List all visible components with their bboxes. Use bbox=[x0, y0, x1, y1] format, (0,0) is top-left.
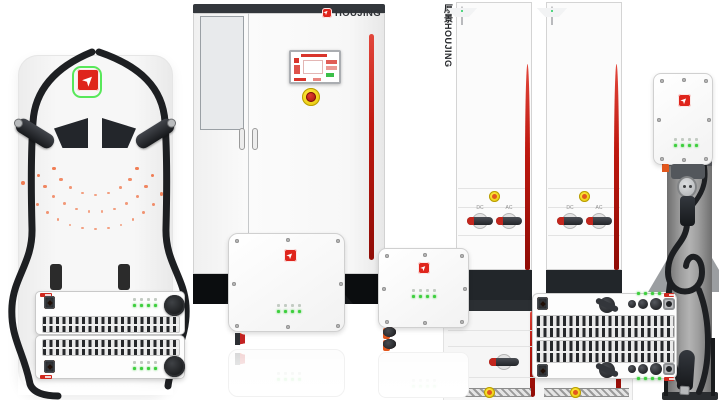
status-led bbox=[291, 304, 294, 307]
emergency-stop-cap bbox=[306, 92, 316, 102]
charging-status-dot bbox=[46, 211, 49, 214]
product-collage-canvas: ➤ bbox=[0, 0, 719, 400]
charging-status-dot bbox=[152, 203, 155, 206]
status-led bbox=[688, 144, 691, 147]
reflection-leds bbox=[412, 379, 440, 391]
screw bbox=[660, 79, 664, 83]
emergency-stop-button[interactable] bbox=[579, 191, 590, 202]
status-led bbox=[291, 372, 294, 375]
connector-rbk bbox=[383, 339, 396, 349]
brand-arrow-icon: ➤ bbox=[679, 95, 689, 105]
emergency-stop-cap bbox=[582, 194, 587, 199]
round-connector bbox=[650, 363, 662, 375]
screw bbox=[657, 118, 661, 122]
connector-bk bbox=[44, 360, 55, 373]
connector-pin bbox=[689, 185, 692, 188]
power-module-unit-bottom bbox=[35, 335, 185, 379]
connector-bar bbox=[235, 353, 240, 365]
charging-status-dot bbox=[107, 192, 110, 195]
breaker-switch[interactable] bbox=[489, 353, 519, 371]
wall-charger-reflection bbox=[378, 352, 469, 398]
panel-seam bbox=[548, 188, 620, 189]
status-led bbox=[133, 298, 136, 301]
charging-status-dot bbox=[36, 203, 39, 206]
charging-status-dot bbox=[52, 195, 55, 198]
charging-status-dot bbox=[132, 218, 135, 221]
switch-label: DC bbox=[476, 205, 483, 211]
module-vent-grille bbox=[536, 340, 675, 363]
status-led bbox=[695, 144, 698, 147]
vent-hatch-strip bbox=[544, 388, 629, 397]
brand-arrow-icon: ➤ bbox=[79, 71, 97, 89]
charging-status-dot bbox=[101, 210, 104, 213]
charging-status-dot bbox=[94, 194, 97, 197]
charging-status-dot bbox=[75, 208, 78, 211]
status-led bbox=[291, 310, 294, 313]
status-led bbox=[412, 385, 415, 388]
status-led-grid bbox=[674, 138, 702, 150]
charging-status-dot bbox=[113, 208, 116, 211]
status-led bbox=[140, 367, 143, 370]
wall-charger-reflection bbox=[228, 349, 345, 397]
status-led bbox=[695, 138, 698, 141]
charging-status-dot bbox=[120, 224, 123, 227]
screw bbox=[460, 320, 464, 324]
screw bbox=[682, 158, 686, 162]
screw bbox=[660, 157, 664, 161]
connector-bar bbox=[235, 353, 240, 365]
connector-bar bbox=[235, 353, 240, 365]
status-led bbox=[688, 138, 691, 141]
status-led-row bbox=[637, 292, 665, 297]
screw bbox=[286, 238, 290, 242]
emergency-stop-cap bbox=[573, 390, 578, 395]
status-led bbox=[147, 298, 150, 301]
charging-status-dot bbox=[59, 178, 62, 181]
wall-mount-charger-3: ➤ bbox=[653, 73, 713, 165]
status-led bbox=[637, 292, 640, 295]
screw bbox=[232, 282, 236, 286]
status-led bbox=[681, 138, 684, 141]
charging-gun-hanging bbox=[677, 349, 696, 390]
status-led bbox=[298, 310, 301, 313]
vent-grille-chevron bbox=[200, 16, 244, 130]
brand-arrow-icon: ➤ bbox=[323, 9, 331, 17]
dc-breaker-switch[interactable]: DC bbox=[557, 212, 583, 230]
status-led bbox=[433, 289, 436, 292]
status-led bbox=[412, 379, 415, 382]
connector-bar bbox=[235, 353, 240, 365]
switch-handle bbox=[496, 217, 522, 225]
emergency-stop-button[interactable] bbox=[302, 88, 320, 106]
screen-stat-block bbox=[326, 60, 337, 64]
charging-status-dot bbox=[144, 185, 147, 188]
pile-vent-slot bbox=[50, 264, 62, 290]
rack-power-module bbox=[461, 6, 463, 25]
screen-menu-block bbox=[294, 65, 300, 74]
status-led bbox=[674, 138, 677, 141]
charging-status-dot bbox=[166, 181, 170, 185]
wall-mount-charger-2: ➤ bbox=[378, 248, 469, 328]
status-led bbox=[419, 379, 422, 382]
brand-mini-label bbox=[40, 375, 52, 379]
round-power-connector bbox=[164, 356, 185, 377]
charging-status-dot bbox=[94, 228, 97, 231]
round-connector bbox=[638, 364, 648, 374]
charging-gun-body bbox=[680, 196, 695, 226]
switch-handle bbox=[586, 217, 612, 225]
switch-label: DC bbox=[566, 205, 573, 211]
status-led bbox=[284, 378, 287, 381]
connector-nub bbox=[235, 353, 242, 364]
screw bbox=[707, 118, 711, 122]
charging-gun-connector-face bbox=[677, 176, 697, 198]
charging-status-dot bbox=[52, 167, 56, 171]
status-led bbox=[154, 367, 157, 370]
connector-bk bbox=[44, 296, 55, 309]
round-connector bbox=[638, 299, 648, 309]
charging-status-dot bbox=[81, 227, 84, 230]
connector-bk bbox=[537, 297, 548, 310]
screw bbox=[385, 254, 389, 258]
status-led bbox=[412, 295, 415, 298]
status-led bbox=[298, 372, 301, 375]
status-led bbox=[298, 304, 301, 307]
status-led bbox=[674, 144, 677, 147]
ac-breaker-switch[interactable]: AC bbox=[586, 212, 612, 230]
switch-handle bbox=[557, 217, 583, 225]
cable-hook-wing-left bbox=[648, 258, 668, 292]
rack-module-stack bbox=[461, 6, 527, 190]
charging-status-dot bbox=[135, 167, 139, 171]
brand-mini-label bbox=[664, 293, 674, 297]
status-led bbox=[284, 304, 287, 307]
ac-breaker-switch[interactable]: AC bbox=[496, 212, 522, 230]
emergency-stop-cap bbox=[487, 390, 492, 395]
emergency-stop-cap bbox=[492, 194, 497, 199]
dc-breaker-switch[interactable]: DC bbox=[467, 212, 493, 230]
status-led bbox=[147, 304, 150, 307]
charging-status-dot bbox=[142, 211, 145, 214]
status-led bbox=[433, 379, 436, 382]
charging-status-dot bbox=[63, 202, 66, 205]
rotary-knob[interactable] bbox=[599, 362, 615, 378]
door-handle-left bbox=[239, 128, 245, 150]
panel-seam bbox=[458, 235, 530, 236]
wide-power-module-unit bbox=[532, 293, 677, 379]
rack-module-stack bbox=[551, 6, 617, 190]
screw bbox=[336, 324, 340, 328]
connector-bar bbox=[235, 353, 240, 365]
status-led bbox=[551, 10, 553, 12]
rack-power-module bbox=[551, 6, 553, 25]
screen-footer-block bbox=[313, 78, 321, 81]
screen-chart-area bbox=[303, 60, 323, 74]
status-led bbox=[412, 289, 415, 292]
emergency-stop-button[interactable] bbox=[570, 387, 581, 398]
charging-status-dot bbox=[88, 210, 91, 213]
module-vent-grille bbox=[42, 316, 180, 333]
status-led bbox=[133, 361, 136, 364]
screw bbox=[235, 239, 239, 243]
screw bbox=[235, 324, 239, 328]
status-led bbox=[426, 385, 429, 388]
switch-label: AC bbox=[596, 205, 603, 211]
connector-bar bbox=[235, 353, 240, 365]
connector-red bbox=[236, 353, 245, 365]
status-led bbox=[147, 361, 150, 364]
screw bbox=[460, 254, 464, 258]
status-led bbox=[133, 367, 136, 370]
wall-mount-charger-1: ➤ bbox=[228, 233, 345, 332]
status-led bbox=[658, 292, 661, 295]
round-connector bbox=[628, 300, 636, 308]
status-led bbox=[154, 298, 157, 301]
brand-vertical-label: 厚景HOUJING bbox=[441, 4, 455, 88]
status-led bbox=[644, 377, 647, 380]
brand-wordmark: HOUJING bbox=[335, 8, 381, 19]
charging-status-dot bbox=[107, 227, 110, 230]
module-led-notch bbox=[537, 8, 567, 17]
switch-label: AC bbox=[506, 205, 513, 211]
screw bbox=[382, 287, 386, 291]
status-led bbox=[277, 372, 280, 375]
charging-status-dot bbox=[21, 181, 25, 185]
brand-logo: ➤ bbox=[77, 69, 99, 91]
charging-status-dot bbox=[151, 174, 155, 178]
connector-bk bbox=[537, 364, 548, 377]
pile-vent-slot bbox=[118, 264, 130, 290]
pedestal-rail bbox=[711, 338, 715, 396]
brand-logo: ➤ bbox=[284, 249, 297, 262]
screw bbox=[682, 78, 686, 82]
status-led bbox=[644, 292, 647, 295]
power-rack-right: DC AC bbox=[546, 2, 622, 311]
status-led bbox=[651, 292, 654, 295]
emergency-stop-button[interactable] bbox=[484, 387, 495, 398]
cable-hook-wing-right bbox=[712, 258, 719, 292]
panel-seam bbox=[548, 235, 620, 236]
charging-status-dot bbox=[43, 185, 46, 188]
connector-bar bbox=[235, 353, 240, 365]
status-led bbox=[681, 144, 684, 147]
status-led bbox=[291, 378, 294, 381]
charging-status-dot-arcs bbox=[18, 135, 173, 260]
status-led bbox=[140, 304, 143, 307]
status-led bbox=[419, 289, 422, 292]
connector-rbk bbox=[383, 327, 396, 337]
charging-status-dot bbox=[125, 202, 128, 205]
status-led bbox=[637, 377, 640, 380]
panel-seam bbox=[458, 207, 530, 208]
brand-logo: ➤ bbox=[418, 262, 430, 274]
charging-status-dot bbox=[128, 178, 131, 181]
status-led bbox=[433, 295, 436, 298]
power-module-unit-top bbox=[35, 291, 185, 335]
door-handle-right bbox=[252, 128, 258, 150]
screw bbox=[385, 320, 389, 324]
connector-pin bbox=[683, 185, 686, 188]
status-led bbox=[426, 295, 429, 298]
module-vent-grille bbox=[536, 315, 675, 338]
reflection-leds bbox=[277, 372, 305, 384]
status-led bbox=[277, 378, 280, 381]
gun-tip bbox=[12, 117, 24, 129]
status-led-grid bbox=[277, 304, 305, 316]
emergency-stop-button[interactable] bbox=[489, 191, 500, 202]
screen-footer-block bbox=[294, 78, 306, 81]
charging-status-dot bbox=[119, 186, 122, 189]
hmi-touchscreen[interactable] bbox=[289, 50, 341, 84]
switch-handle bbox=[489, 358, 519, 366]
status-led bbox=[147, 367, 150, 370]
status-led bbox=[426, 289, 429, 292]
connector-red bbox=[236, 353, 245, 365]
screw bbox=[704, 79, 708, 83]
connector-nub bbox=[662, 164, 669, 172]
screw bbox=[336, 239, 340, 243]
status-led bbox=[426, 379, 429, 382]
status-led bbox=[433, 385, 436, 388]
screw bbox=[463, 287, 467, 291]
round-power-connector bbox=[164, 295, 185, 316]
status-led bbox=[140, 298, 143, 301]
module-led-grid bbox=[133, 361, 161, 373]
gun-tip bbox=[679, 386, 690, 396]
charging-status-dot bbox=[37, 174, 41, 178]
brand-arrow-icon: ➤ bbox=[419, 263, 428, 272]
charging-status-dot bbox=[136, 195, 139, 198]
screw bbox=[423, 321, 427, 325]
status-led-row bbox=[637, 377, 665, 382]
screen-stat-block bbox=[326, 66, 337, 70]
charging-status-dot bbox=[69, 186, 72, 189]
switch-handle bbox=[467, 217, 493, 225]
charging-status-dot bbox=[81, 192, 84, 195]
brand-logo: ➤ bbox=[678, 94, 691, 107]
brand-mini-label bbox=[664, 377, 674, 381]
screw bbox=[286, 325, 290, 329]
round-connector bbox=[650, 298, 662, 310]
accent-stripe bbox=[525, 64, 530, 270]
panel-seam bbox=[458, 188, 530, 189]
status-led bbox=[284, 372, 287, 375]
brand-arrow-icon: ➤ bbox=[285, 250, 295, 260]
pedestal-foot bbox=[662, 392, 718, 400]
square-connector bbox=[663, 363, 675, 375]
round-connector bbox=[628, 365, 636, 373]
status-led bbox=[651, 377, 654, 380]
screw bbox=[704, 157, 708, 161]
screw bbox=[339, 282, 343, 286]
status-led bbox=[140, 361, 143, 364]
connector-bar bbox=[235, 333, 240, 345]
status-led bbox=[154, 304, 157, 307]
accent-stripe bbox=[369, 34, 374, 260]
module-led-grid bbox=[133, 298, 161, 310]
screen-ok-button bbox=[326, 73, 334, 77]
rotary-knob[interactable] bbox=[599, 297, 615, 313]
status-led bbox=[277, 304, 280, 307]
charging-status-dot bbox=[57, 218, 60, 221]
panel-seam bbox=[548, 207, 620, 208]
status-led bbox=[154, 361, 157, 364]
status-led bbox=[133, 304, 136, 307]
charging-status-dot bbox=[69, 224, 72, 227]
brand-logo: ➤ bbox=[322, 8, 332, 18]
status-led bbox=[298, 378, 301, 381]
screw bbox=[423, 253, 427, 257]
status-led bbox=[284, 310, 287, 313]
screen-logo-block bbox=[294, 58, 299, 63]
status-led bbox=[461, 10, 463, 12]
module-vent-grille bbox=[42, 339, 180, 356]
status-led bbox=[419, 385, 422, 388]
charging-status-dot bbox=[160, 192, 163, 195]
connector-bar bbox=[235, 353, 240, 365]
status-led-grid bbox=[412, 289, 440, 301]
screen-header-bar bbox=[301, 54, 327, 57]
status-led bbox=[658, 377, 661, 380]
status-led bbox=[277, 310, 280, 313]
accent-stripe bbox=[614, 64, 619, 270]
status-led bbox=[419, 295, 422, 298]
square-connector bbox=[663, 298, 675, 310]
charging-status-dot bbox=[28, 192, 31, 195]
gun-tip bbox=[165, 117, 177, 129]
